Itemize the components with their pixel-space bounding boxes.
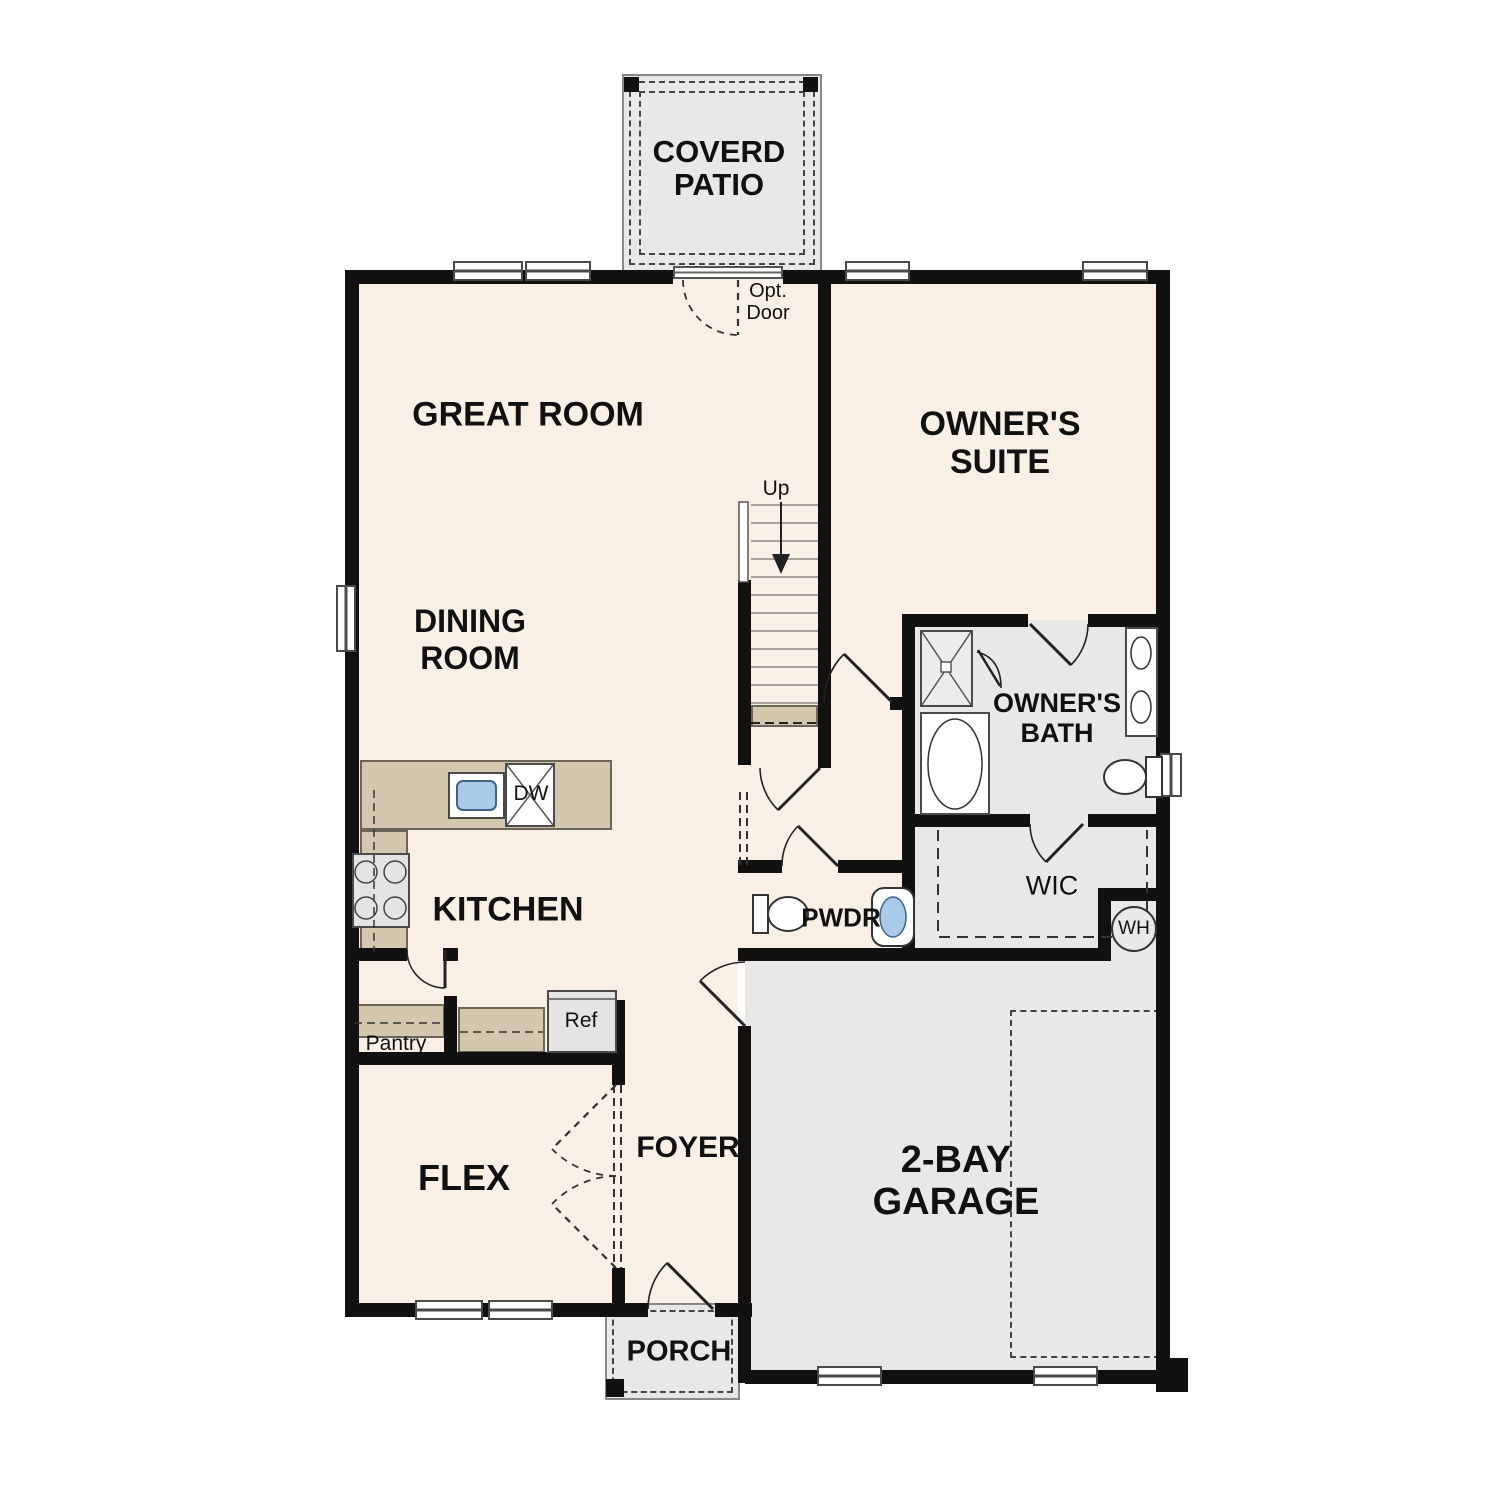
suite-hall-door: [824, 654, 892, 702]
stair-rail: [739, 502, 748, 582]
label-kitchen: KITCHEN: [432, 891, 583, 930]
stove-burners: [355, 861, 406, 919]
label-pwdr: PWDR: [801, 903, 880, 934]
label-garage: 2-BAYGARAGE: [873, 1139, 1040, 1223]
owners-bath-door: [1030, 624, 1088, 665]
label-covered-patio: COVERDPATIO: [653, 135, 786, 201]
label-water-heater: WH: [1118, 918, 1150, 940]
garage-entry-door: [700, 962, 745, 1026]
label-wic: WIC: [1026, 871, 1078, 902]
shower-x: [922, 632, 971, 705]
label-owners-bath: OWNER'SBATH: [993, 688, 1121, 748]
bathtub-basin: [928, 719, 982, 809]
stairs-up-arrow: [772, 502, 790, 574]
label-dining-room: DININGROOM: [414, 603, 526, 677]
front-door: [648, 1263, 713, 1309]
vanity-sinks: [1131, 637, 1151, 723]
opt-french-doors-flex: [552, 1085, 616, 1268]
label-stairs-up: Up: [763, 477, 790, 501]
opt-patio-door-swing: [683, 280, 738, 335]
pantry-door: [407, 950, 445, 988]
label-opt-door: Opt.Door: [746, 280, 789, 324]
label-foyer: FOYER: [636, 1131, 739, 1165]
label-porch: PORCH: [627, 1336, 732, 1369]
hall-door-stairs: [760, 768, 820, 810]
label-great-room: GREAT ROOM: [412, 396, 644, 435]
floor-plan: COVERDPATIO GREAT ROOM OWNER'SSUITE DINI…: [0, 0, 1500, 1500]
shower-door: [977, 650, 1001, 688]
cased-opening-hall: [740, 792, 747, 868]
label-flex: FLEX: [418, 1157, 510, 1199]
wic-door: [1030, 824, 1083, 862]
pwdr-door: [782, 826, 838, 866]
bath-toilet: [1104, 757, 1162, 797]
label-dishwasher: DW: [514, 782, 549, 806]
plan-linework: [0, 0, 1500, 1500]
label-refrigerator: Ref: [565, 1009, 598, 1033]
pwdr-toilet: [753, 895, 808, 933]
staircase-treads: [751, 505, 818, 703]
label-owners-suite: OWNER'SSUITE: [919, 405, 1080, 481]
label-pantry: Pantry: [366, 1032, 427, 1056]
